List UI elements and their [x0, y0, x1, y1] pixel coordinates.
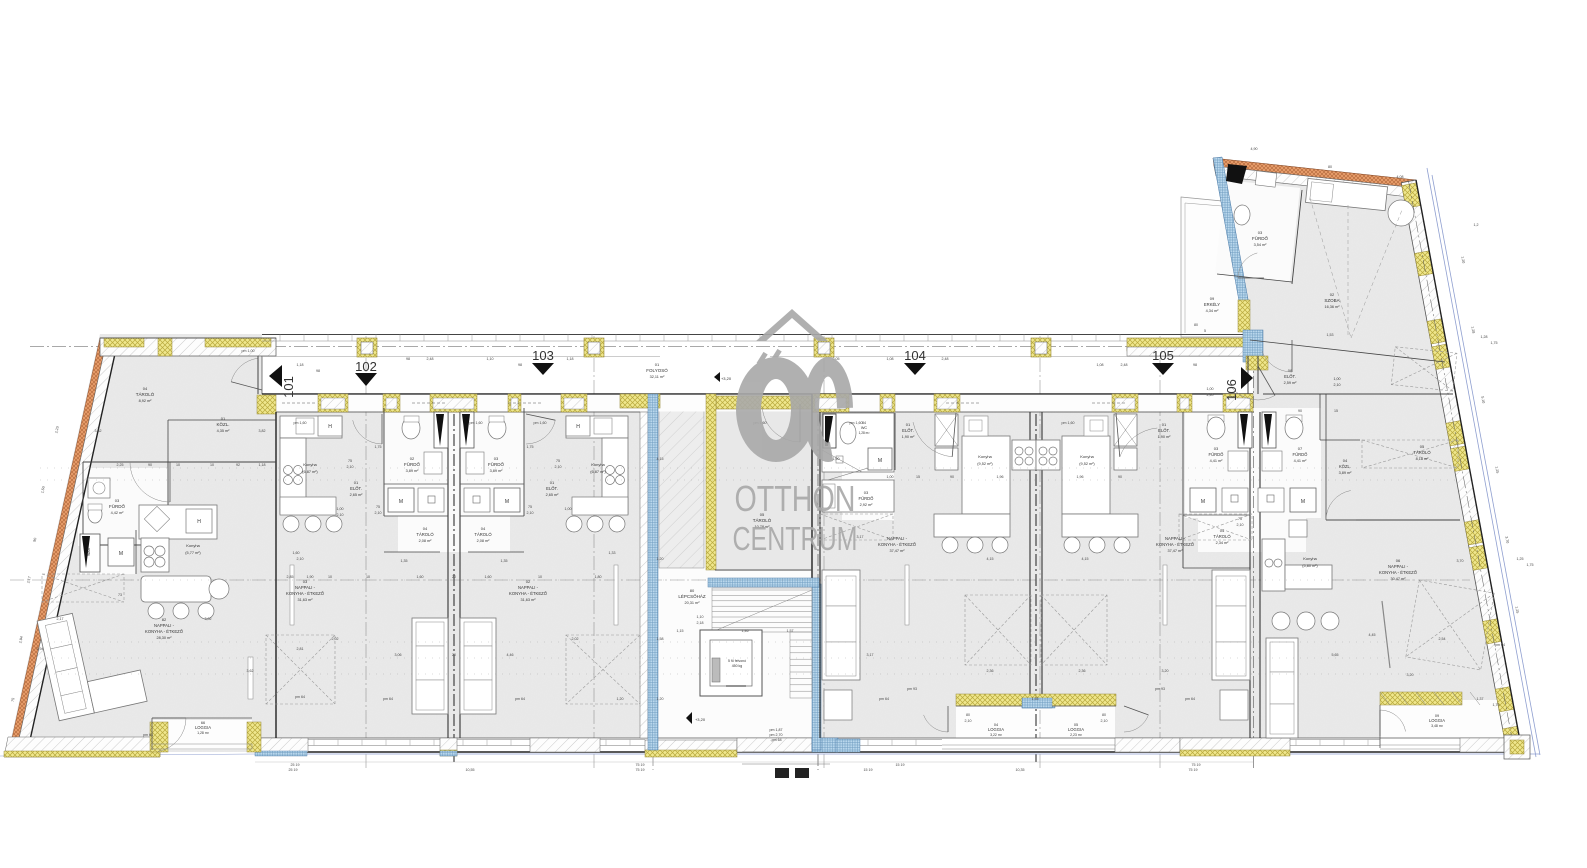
svg-text:(6,87 m²): (6,87 m²)	[302, 470, 318, 474]
svg-text:M: M	[1201, 499, 1205, 505]
svg-text:3,89 m²: 3,89 m²	[406, 469, 420, 473]
svg-text:2,10: 2,10	[965, 719, 972, 723]
svg-text:106: 106	[1224, 379, 1239, 401]
svg-text:4,46: 4,46	[507, 653, 514, 657]
svg-text:1,80: 1,80	[595, 575, 602, 579]
svg-text:ERKÉLY: ERKÉLY	[1204, 302, 1220, 307]
svg-text:2,08 m²: 2,08 m²	[477, 539, 491, 543]
svg-text:80: 80	[1328, 165, 1332, 169]
svg-text:1,10: 1,10	[487, 357, 494, 361]
svg-text:98: 98	[518, 363, 522, 367]
svg-text:2,08 m²: 2,08 m²	[419, 539, 433, 543]
svg-text:10,55: 10,55	[466, 768, 475, 772]
svg-text:90: 90	[148, 463, 152, 467]
svg-text:3,02: 3,02	[205, 617, 212, 621]
svg-text:2,81: 2,81	[297, 647, 304, 651]
svg-text:2,10: 2,10	[347, 465, 354, 469]
svg-text:pm 1,60: pm 1,60	[294, 421, 307, 425]
svg-text:FÜRDŐ: FÜRDŐ	[109, 503, 125, 509]
svg-text:H: H	[197, 519, 201, 525]
svg-text:30,47 m²: 30,47 m²	[1391, 577, 1407, 581]
svg-text:1,00: 1,00	[337, 507, 344, 511]
svg-text:02: 02	[1330, 292, 1335, 297]
svg-text:1,75: 1,75	[375, 445, 382, 449]
svg-text:H: H	[576, 424, 580, 430]
svg-text:03: 03	[115, 498, 120, 503]
svg-text:25 19: 25 19	[291, 763, 300, 767]
svg-text:4,15: 4,15	[987, 557, 994, 561]
svg-text:2,36: 2,36	[1079, 669, 1086, 673]
svg-text:NAPPALI -: NAPPALI -	[295, 585, 316, 590]
svg-text:NAPPALI -: NAPPALI -	[518, 585, 539, 590]
svg-text:05: 05	[1420, 444, 1425, 449]
svg-text:80: 80	[1102, 713, 1106, 717]
svg-text:1,18: 1,18	[567, 357, 574, 361]
svg-text:2,48: 2,48	[1121, 363, 1128, 367]
svg-text:pm 1,00: pm 1,00	[242, 349, 255, 353]
svg-text:16,36 m²: 16,36 m²	[1325, 305, 1341, 309]
svg-text:8,92 m²: 8,92 m²	[139, 399, 153, 403]
svg-text:04: 04	[423, 526, 428, 531]
svg-text:73: 73	[118, 593, 122, 597]
svg-text:FÜRDŐ: FÜRDŐ	[1252, 235, 1268, 241]
svg-text:FÜRDŐ: FÜRDŐ	[488, 461, 504, 467]
svg-text:09: 09	[1210, 296, 1215, 301]
svg-text:75 19: 75 19	[1189, 768, 1198, 772]
svg-text:pm 93: pm 93	[907, 687, 917, 691]
svg-text:2,40: 2,40	[1207, 393, 1214, 397]
svg-text:3,20: 3,20	[1162, 669, 1169, 673]
svg-text:1,35: 1,35	[501, 559, 508, 563]
svg-text:LOGGIA: LOGGIA	[1429, 718, 1445, 723]
svg-text:31,63 m²: 31,63 m²	[298, 598, 314, 602]
svg-text:Konyha: Konyha	[1080, 454, 1094, 459]
svg-text:4,15: 4,15	[657, 457, 664, 461]
svg-text:07: 07	[1298, 446, 1303, 451]
svg-text:4,45: 4,45	[1369, 633, 1376, 637]
svg-text:ELŐT.: ELŐT.	[902, 428, 914, 433]
svg-text:pm 64: pm 64	[295, 695, 305, 699]
svg-text:WAS: WAS	[87, 547, 91, 556]
svg-text:10: 10	[176, 463, 180, 467]
svg-text:2,10: 2,10	[555, 465, 562, 469]
svg-text:75 19: 75 19	[636, 768, 645, 772]
svg-text:10: 10	[328, 575, 332, 579]
svg-text:4,41 m²: 4,41 m²	[1210, 459, 1224, 463]
svg-text:LOGGIA: LOGGIA	[988, 727, 1004, 732]
svg-text:(6,87 m²): (6,87 m²)	[590, 470, 606, 474]
svg-text:75: 75	[1238, 517, 1242, 521]
svg-text:15: 15	[1334, 409, 1338, 413]
svg-text:1,75: 1,75	[527, 445, 534, 449]
svg-text:1,00: 1,00	[887, 475, 894, 479]
svg-text:ELŐT.: ELŐT.	[1158, 428, 1170, 433]
svg-text:(5,77 m²): (5,77 m²)	[185, 551, 201, 555]
svg-text:2,17: 2,17	[57, 617, 64, 621]
svg-text:90: 90	[1298, 409, 1302, 413]
svg-text:1,53: 1,53	[1327, 333, 1334, 337]
svg-text:pm 1,60: pm 1,60	[534, 421, 547, 425]
svg-text:M: M	[878, 458, 882, 464]
svg-text:450 kg: 450 kg	[732, 664, 743, 668]
svg-text:3,70: 3,70	[1457, 559, 1464, 563]
svg-text:98: 98	[406, 357, 410, 361]
svg-text:NAPPALI -: NAPPALI -	[1388, 564, 1409, 569]
svg-text:4,90: 4,90	[1251, 147, 1258, 151]
svg-text:1,55: 1,55	[1032, 697, 1039, 701]
svg-text:3,89 m²: 3,89 m²	[490, 469, 504, 473]
svg-text:8,18 m²: 8,18 m²	[1416, 457, 1430, 461]
svg-text:1,57: 1,57	[787, 629, 794, 633]
svg-text:3,20: 3,20	[1407, 673, 1414, 677]
svg-text:1,2: 1,2	[1474, 223, 1479, 227]
svg-text:20,31 m²: 20,31 m²	[685, 601, 701, 605]
svg-text:01: 01	[655, 362, 660, 367]
svg-text:98: 98	[1193, 363, 1197, 367]
svg-text:01: 01	[354, 480, 359, 485]
svg-text:15 19: 15 19	[864, 768, 873, 772]
svg-text:KONYHA - ÉTKEZŐ: KONYHA - ÉTKEZŐ	[1379, 570, 1418, 575]
svg-text:75: 75	[528, 505, 532, 509]
svg-text:75: 75	[348, 459, 352, 463]
svg-text:(9,52 m²): (9,52 m²)	[1079, 462, 1095, 466]
svg-text:1,75: 1,75	[1493, 703, 1500, 707]
svg-text:03: 03	[864, 490, 869, 495]
svg-text:3,89 m²: 3,89 m²	[1339, 471, 1353, 475]
svg-text:KONYHA - ÉTKEZŐ: KONYHA - ÉTKEZŐ	[1156, 542, 1195, 547]
svg-text:3,06: 3,06	[395, 653, 402, 657]
svg-text:1,00: 1,00	[1334, 377, 1341, 381]
svg-text:TÁROLÓ: TÁROLÓ	[136, 391, 155, 397]
svg-text:04: 04	[143, 386, 148, 391]
svg-text:01: 01	[221, 416, 226, 421]
svg-text:75 19: 75 19	[1192, 763, 1201, 767]
svg-text:1,58: 1,58	[657, 637, 664, 641]
svg-text:NAPPALI -: NAPPALI -	[154, 623, 175, 628]
svg-text:1,20: 1,20	[657, 697, 664, 701]
svg-text:98: 98	[316, 369, 320, 373]
svg-text:2,10: 2,10	[297, 557, 304, 561]
svg-text:10: 10	[538, 575, 542, 579]
svg-text:31,63 m²: 31,63 m²	[521, 598, 537, 602]
svg-text:2,10: 2,10	[1101, 719, 1108, 723]
svg-text:4,34 m²: 4,34 m²	[1206, 309, 1220, 313]
svg-text:pm 1,60: pm 1,60	[1062, 421, 1075, 425]
svg-text:pm 93: pm 93	[1155, 687, 1165, 691]
svg-text:1,96: 1,96	[1077, 475, 1084, 479]
svg-text:2,65 m²: 2,65 m²	[350, 493, 364, 497]
svg-text:1,75: 1,75	[1491, 341, 1498, 345]
svg-text:pm 64: pm 64	[515, 697, 525, 701]
svg-text:1,60: 1,60	[417, 575, 424, 579]
svg-text:1,15: 1,15	[677, 629, 684, 633]
svg-text:2,65 m²: 2,65 m²	[546, 493, 560, 497]
svg-text:2,48: 2,48	[942, 357, 949, 361]
svg-text:ELŐT.: ELŐT.	[1284, 374, 1296, 379]
svg-text:pm 1,87: pm 1,87	[770, 728, 783, 732]
svg-text:37,47 m²: 37,47 m²	[1168, 549, 1184, 553]
svg-text:(9,52 m²): (9,52 m²)	[977, 462, 993, 466]
svg-text:101: 101	[281, 376, 296, 398]
svg-text:102: 102	[355, 359, 377, 374]
svg-text:03: 03	[1258, 230, 1263, 235]
svg-text:01: 01	[906, 422, 911, 427]
svg-text:1,75: 1,75	[1527, 563, 1534, 567]
svg-text:3,54 m²: 3,54 m²	[1254, 243, 1268, 247]
svg-text:80: 80	[690, 588, 695, 593]
svg-text:pm 64: pm 64	[1185, 697, 1195, 701]
svg-text:1,35: 1,35	[401, 559, 408, 563]
svg-text:OTTHON: OTTHON	[735, 478, 856, 519]
svg-text:pm 1,60: pm 1,60	[850, 421, 863, 425]
svg-text:2,10: 2,10	[375, 511, 382, 515]
svg-text:Konyha: Konyha	[303, 462, 317, 467]
svg-text:ELŐT.: ELŐT.	[350, 486, 362, 491]
svg-text:1,90 m²: 1,90 m²	[902, 435, 916, 439]
svg-text:CENTRUM: CENTRUM	[733, 520, 858, 557]
svg-text:FÜRDŐ: FÜRDŐ	[1209, 452, 1225, 457]
svg-text:5,65: 5,65	[1332, 653, 1339, 657]
svg-text:H: H	[328, 424, 332, 430]
svg-text:TÁROLÓ: TÁROLÓ	[416, 532, 434, 537]
svg-text:1,46: 1,46	[742, 629, 749, 633]
svg-text:2,36: 2,36	[987, 669, 994, 673]
svg-text:75: 75	[376, 505, 380, 509]
svg-text:2,85: 2,85	[287, 575, 294, 579]
svg-text:pm 1,60: pm 1,60	[470, 421, 483, 425]
svg-text:KONYHA - ÉTKEZŐ: KONYHA - ÉTKEZŐ	[145, 629, 184, 634]
svg-text:3,22 m²: 3,22 m²	[990, 733, 1003, 737]
svg-text:2,92 m²: 2,92 m²	[860, 503, 874, 507]
svg-text:SZOBA: SZOBA	[1324, 298, 1339, 303]
svg-text:5 fő felvonó: 5 fő felvonó	[728, 659, 746, 663]
svg-text:2,59 m²: 2,59 m²	[1284, 381, 1298, 385]
svg-text:06: 06	[1396, 558, 1401, 563]
svg-text:03: 03	[494, 456, 499, 461]
svg-text:2,18: 2,18	[697, 621, 704, 625]
svg-text:04: 04	[481, 526, 486, 531]
svg-text:1,25: 1,25	[1517, 557, 1524, 561]
svg-text:4,41 m²: 4,41 m²	[1294, 459, 1308, 463]
svg-text:1,60: 1,60	[485, 575, 492, 579]
svg-text:90: 90	[1118, 475, 1122, 479]
svg-text:M: M	[505, 499, 509, 505]
svg-text:2,34 m²: 2,34 m²	[1216, 541, 1230, 545]
svg-text:103: 103	[532, 348, 554, 363]
svg-text:80: 80	[1194, 323, 1198, 327]
svg-text:80: 80	[966, 713, 970, 717]
svg-text:4,15: 4,15	[1082, 557, 1089, 561]
svg-text:1,08: 1,08	[887, 357, 894, 361]
svg-text:1,28 m²: 1,28 m²	[859, 431, 870, 435]
svg-text:1,20: 1,20	[657, 557, 664, 561]
svg-text:15 19: 15 19	[896, 763, 905, 767]
svg-text:1,08: 1,08	[1097, 363, 1104, 367]
svg-text:3,82: 3,82	[259, 429, 266, 433]
svg-text:pm 64: pm 64	[1495, 643, 1505, 647]
svg-text:KONYHA - ÉTKEZŐ: KONYHA - ÉTKEZŐ	[509, 591, 548, 596]
svg-text:04: 04	[1220, 528, 1225, 533]
svg-text:32,11 m²: 32,11 m²	[650, 375, 665, 379]
svg-text:20: 20	[452, 653, 456, 657]
svg-text:pm 64: pm 64	[879, 697, 889, 701]
svg-text:+3,20: +3,20	[721, 376, 732, 381]
svg-text:1,10: 1,10	[697, 615, 704, 619]
svg-text:M: M	[1301, 499, 1305, 505]
svg-text:02: 02	[410, 456, 415, 461]
svg-text:3,48 m²: 3,48 m²	[1431, 724, 1444, 728]
svg-text:1,28 m²: 1,28 m²	[197, 731, 210, 735]
svg-text:15: 15	[916, 475, 920, 479]
svg-text:+3,20: +3,20	[695, 717, 706, 722]
svg-text:2,10: 2,10	[337, 513, 344, 517]
svg-text:LOGGIA: LOGGIA	[195, 725, 211, 730]
svg-text:Konyha: Konyha	[1303, 556, 1317, 561]
svg-text:20: 20	[452, 575, 456, 579]
svg-text:(5,80 m²): (5,80 m²)	[1302, 564, 1318, 568]
svg-text:WC: WC	[861, 426, 868, 430]
svg-text:02: 02	[526, 579, 531, 584]
svg-text:TÁROLÓ: TÁROLÓ	[1413, 450, 1431, 455]
svg-text:1,18: 1,18	[259, 463, 266, 467]
svg-text:2,94: 2,94	[37, 647, 44, 651]
svg-text:pm 2,70: pm 2,70	[770, 733, 783, 737]
svg-text:1,96: 1,96	[997, 475, 1004, 479]
svg-text:4,08: 4,08	[1397, 175, 1404, 179]
svg-text:1,00: 1,00	[1207, 387, 1214, 391]
svg-text:75: 75	[556, 459, 560, 463]
svg-text:FÜRDŐ: FÜRDŐ	[859, 496, 875, 501]
svg-text:2,10: 2,10	[1334, 383, 1341, 387]
svg-text:1,90 m²: 1,90 m²	[1158, 435, 1172, 439]
svg-text:1,90: 1,90	[307, 575, 314, 579]
svg-text:KÖZL.: KÖZL.	[1339, 464, 1351, 469]
svg-text:KONYHA - ÉTKEZŐ: KONYHA - ÉTKEZŐ	[878, 542, 917, 547]
svg-text:1,33: 1,33	[609, 551, 616, 555]
svg-text:KONYHA - ÉTKEZŐ: KONYHA - ÉTKEZŐ	[286, 591, 325, 596]
svg-text:2,54: 2,54	[1439, 637, 1446, 641]
svg-text:03: 03	[303, 579, 308, 584]
svg-text:92: 92	[236, 463, 240, 467]
svg-text:LOGGIA: LOGGIA	[1068, 727, 1084, 732]
svg-text:FÜRDŐ: FÜRDŐ	[404, 461, 420, 467]
svg-text:2,25: 2,25	[117, 463, 124, 467]
svg-text:2,48: 2,48	[427, 357, 434, 361]
svg-text:2,10: 2,10	[527, 511, 534, 515]
svg-text:FOLYOSÓ: FOLYOSÓ	[646, 367, 668, 373]
svg-text:Konyha: Konyha	[186, 543, 200, 548]
svg-text:pm 64: pm 64	[383, 697, 393, 701]
svg-text:10: 10	[210, 463, 214, 467]
svg-text:10,35: 10,35	[1016, 768, 1025, 772]
svg-text:Konyha: Konyha	[978, 454, 992, 459]
svg-text:1,28: 1,28	[1481, 335, 1488, 339]
svg-text:2,02: 2,02	[572, 637, 579, 641]
svg-text:M: M	[119, 551, 123, 557]
svg-text:1,60: 1,60	[293, 551, 300, 555]
svg-text:3,17: 3,17	[857, 535, 864, 539]
svg-text:1,37: 1,37	[1477, 697, 1484, 701]
svg-text:37,47 m²: 37,47 m²	[890, 549, 906, 553]
svg-text:4,35 m²: 4,35 m²	[217, 429, 231, 433]
svg-text:TÁROLÓ: TÁROLÓ	[474, 532, 492, 537]
svg-text:Konyha: Konyha	[591, 462, 605, 467]
svg-text:pm 64: pm 64	[143, 733, 153, 737]
svg-text:ELŐT.: ELŐT.	[546, 486, 558, 491]
svg-text:1,18: 1,18	[297, 363, 304, 367]
svg-text:2,23 m²: 2,23 m²	[1070, 733, 1083, 737]
svg-text:KÖZL.: KÖZL.	[216, 421, 229, 427]
svg-text:3,82: 3,82	[95, 429, 102, 433]
svg-text:1,00: 1,00	[565, 507, 572, 511]
svg-text:01: 01	[550, 480, 555, 485]
svg-text:3,17: 3,17	[867, 653, 874, 657]
svg-text:75 19: 75 19	[636, 763, 645, 767]
svg-text:2,02: 2,02	[332, 637, 339, 641]
svg-text:28,30 m²: 28,30 m²	[157, 636, 173, 640]
svg-text:M: M	[399, 499, 403, 505]
svg-text:NAPPALI -: NAPPALI -	[1165, 536, 1186, 541]
svg-text:03: 03	[1214, 446, 1219, 451]
svg-text:10: 10	[366, 575, 370, 579]
svg-text:104: 104	[904, 348, 926, 363]
svg-text:LÉPCSŐHÁZ: LÉPCSŐHÁZ	[678, 593, 706, 599]
svg-text:5: 5	[1204, 329, 1206, 333]
svg-text:84: 84	[862, 421, 866, 425]
svg-text:1,20: 1,20	[617, 697, 624, 701]
svg-text:25 19: 25 19	[289, 768, 298, 772]
svg-text:90: 90	[950, 475, 954, 479]
svg-text:-pm 64: -pm 64	[770, 738, 781, 742]
svg-text:01: 01	[1162, 422, 1167, 427]
svg-text:1,90: 1,90	[833, 457, 840, 461]
svg-text:82: 82	[162, 617, 167, 622]
svg-text:FÜRDŐ: FÜRDŐ	[1293, 452, 1309, 457]
svg-text:2,10: 2,10	[1237, 523, 1244, 527]
svg-text:TÁROLÓ: TÁROLÓ	[1213, 534, 1231, 539]
svg-text:04: 04	[1343, 458, 1348, 463]
svg-text:NAPPALI -: NAPPALI -	[887, 536, 908, 541]
svg-text:4,42 m²: 4,42 m²	[111, 511, 125, 515]
svg-text:105: 105	[1152, 348, 1174, 363]
svg-text:3,62: 3,62	[247, 669, 254, 673]
